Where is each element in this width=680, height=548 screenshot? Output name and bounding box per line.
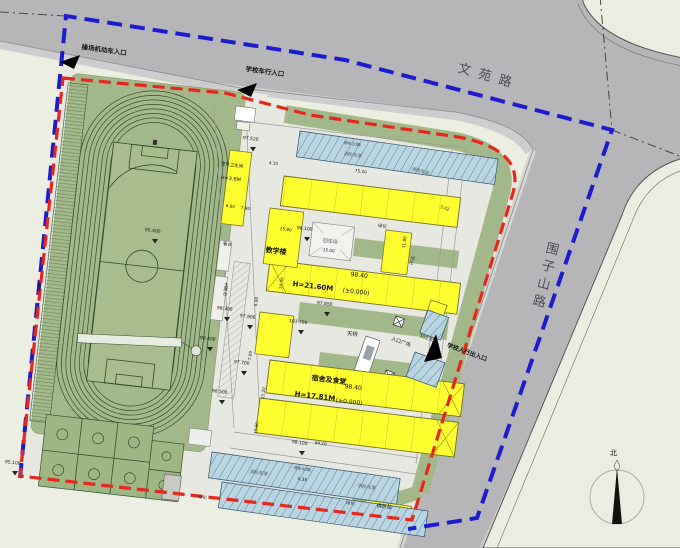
north-label: 北 (610, 450, 617, 457)
teaching-connector-west (263, 208, 304, 268)
teaching-annex (255, 312, 294, 358)
flag-platform (153, 140, 158, 145)
site-plan: 文苑路 围子山路 操场机动车入口 学校车行入口 学校人行出入口 教学楼 H=21… (0, 0, 680, 548)
greenery-label: 绿化 (377, 225, 386, 231)
grandstand-east-label: 看台 (222, 243, 231, 249)
site-plan-drawing (0, 0, 680, 548)
grandstand-west-label: 看台 (35, 282, 41, 291)
rostrum-label: 主席台 (221, 282, 227, 296)
greenery-label: 绿化 (407, 255, 414, 265)
footbridge-label: 天桥 (346, 332, 358, 339)
